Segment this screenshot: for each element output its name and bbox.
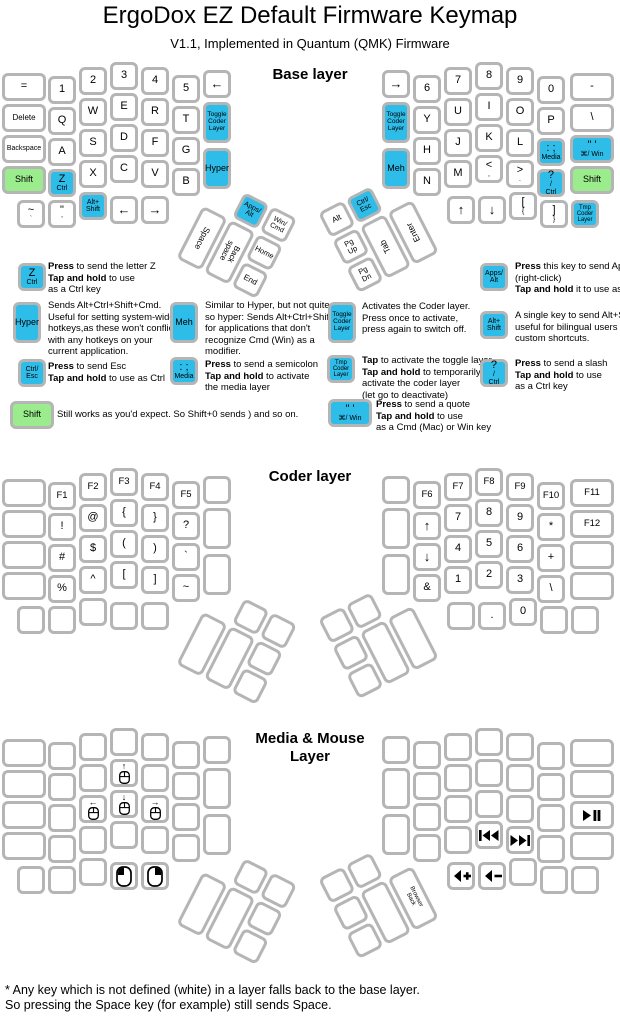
key-base-symbol: → bbox=[141, 196, 169, 224]
key-coder-blank bbox=[570, 572, 614, 600]
key-coder-8: 8 bbox=[475, 499, 503, 527]
key-base-hyper: Hyper bbox=[203, 148, 231, 189]
key-base-n: N bbox=[413, 168, 441, 196]
key-coder-symbol: ` bbox=[172, 543, 200, 571]
key-coder-symbol: ! bbox=[48, 513, 76, 541]
key-media-blank bbox=[172, 803, 200, 831]
key-media-blank bbox=[79, 764, 107, 792]
key-media-mouse-down: ↓ bbox=[110, 790, 138, 818]
key-base-symbol: - bbox=[570, 73, 614, 101]
key-base-symbol: ]} bbox=[540, 200, 568, 228]
key-media-blank bbox=[570, 770, 614, 798]
legend-key-apps-alt: Apps/Alt bbox=[480, 263, 508, 291]
key-base-t: T bbox=[172, 106, 200, 134]
key-media-left-click bbox=[110, 862, 138, 890]
key-coder-f2: F2 bbox=[79, 473, 107, 501]
key-media-prev-track bbox=[475, 821, 503, 849]
key-coder-f3: F3 bbox=[110, 468, 138, 496]
key-media-mouse-left: ← bbox=[79, 795, 107, 823]
key-coder-blank bbox=[382, 508, 410, 549]
key-base-shift: Shift bbox=[2, 166, 46, 194]
key-media-blank bbox=[203, 814, 231, 855]
key-coder-blank bbox=[2, 572, 46, 600]
key-coder-0: 0 bbox=[509, 598, 537, 626]
legend-text-toggle-coder-layer: Activates the Coder layer.Press once to … bbox=[362, 301, 470, 336]
key-media-blank bbox=[382, 814, 410, 855]
key-coder-symbol: * bbox=[537, 513, 565, 541]
legend-key-ctrl: ?/Ctrl bbox=[480, 359, 508, 387]
key-coder-blank bbox=[2, 541, 46, 569]
key-media-volume-down bbox=[478, 862, 506, 890]
key-media-blank bbox=[475, 728, 503, 756]
key-coder-symbol: { bbox=[110, 499, 138, 527]
key-coder-symbol: + bbox=[537, 544, 565, 572]
key-coder-symbol: & bbox=[413, 574, 441, 602]
key-media-blank bbox=[506, 795, 534, 823]
key-media-blank bbox=[382, 768, 410, 809]
key-coder-symbol: ? bbox=[172, 512, 200, 540]
key-coder-f4: F4 bbox=[141, 473, 169, 501]
legend-text-alt-shift: A single key to send Alt+Shift,useful fo… bbox=[515, 310, 620, 345]
key-base-media: : ;Media bbox=[537, 138, 565, 166]
key-base-symbol: ~` bbox=[17, 200, 45, 228]
key-base-symbol: ← bbox=[203, 70, 231, 98]
key-coder-symbol: @ bbox=[79, 504, 107, 532]
key-coder-7: 7 bbox=[444, 504, 472, 532]
key-base-meh: Meh bbox=[382, 148, 410, 189]
key-base-symbol: ↓ bbox=[478, 196, 506, 224]
key-coder-f1: F1 bbox=[48, 482, 76, 510]
legend-key-media: : ;Media bbox=[170, 357, 198, 385]
key-media-blank bbox=[48, 804, 76, 832]
key-base-g: G bbox=[172, 137, 200, 165]
legend-key-win: " '⌘/ Win bbox=[328, 399, 372, 427]
page-title: ErgoDox EZ Default Firmware Keymap bbox=[0, 2, 620, 30]
key-base-win: " '⌘/ Win bbox=[570, 135, 614, 163]
key-media-blank bbox=[172, 772, 200, 800]
key-base-y: Y bbox=[413, 106, 441, 134]
key-media-next-track bbox=[506, 826, 534, 854]
key-media-blank bbox=[537, 804, 565, 832]
key-base-b: B bbox=[172, 168, 200, 196]
key-base-delete: Delete bbox=[2, 104, 46, 132]
legend-key-ctrl-esc: Ctrl/Esc bbox=[18, 359, 46, 387]
key-coder-f10: F10 bbox=[537, 482, 565, 510]
key-coder-f11: F11 bbox=[570, 479, 614, 507]
key-coder-symbol: [ bbox=[110, 561, 138, 589]
key-media-blank bbox=[48, 742, 76, 770]
key-coder-1: 1 bbox=[444, 566, 472, 594]
key-media-volume-up bbox=[447, 862, 475, 890]
key-media-blank bbox=[537, 835, 565, 863]
key-media-blank bbox=[570, 832, 614, 860]
keymap-page: ErgoDox EZ Default Firmware Keymap V1.1,… bbox=[0, 0, 620, 1016]
key-coder-blank bbox=[2, 510, 46, 538]
key-base-symbol: ↑ bbox=[447, 196, 475, 224]
legend-text-ctrl-esc: Press to send EscTap and hold to use as … bbox=[48, 361, 165, 384]
legend-key-tmp-coder-layer: TmpCoderLayer bbox=[327, 355, 355, 383]
key-coder-f12: F12 bbox=[570, 510, 614, 538]
key-base-shift: Shift bbox=[570, 166, 614, 194]
key-media-blank bbox=[506, 764, 534, 792]
key-base-toggle-coder-layer: ToggleCoderLayer bbox=[382, 102, 410, 143]
key-coder-symbol: ↓ bbox=[413, 543, 441, 571]
key-coder-f7: F7 bbox=[444, 473, 472, 501]
key-base-symbol: "' bbox=[48, 200, 76, 228]
key-coder-blank bbox=[203, 508, 231, 549]
key-base-d: D bbox=[110, 124, 138, 152]
key-base-i: I bbox=[475, 93, 503, 121]
key-media-mouse-right: → bbox=[141, 795, 169, 823]
key-base-tmp-coder-layer: TmpCoderLayer bbox=[571, 200, 599, 228]
legend-text-meh: Similar to Hyper, but not quiteso hyper:… bbox=[205, 300, 334, 358]
key-media-blank bbox=[141, 764, 169, 792]
key-base-alt-shift: Alt+Shift bbox=[79, 192, 107, 220]
key-media-blank bbox=[382, 736, 410, 764]
key-base-p: P bbox=[537, 107, 565, 135]
key-coder-blank bbox=[141, 602, 169, 630]
key-base-x: X bbox=[79, 160, 107, 188]
key-coder-f8: F8 bbox=[475, 468, 503, 496]
key-base-symbol: ← bbox=[110, 196, 138, 224]
key-media-blank bbox=[110, 728, 138, 756]
key-base-s: S bbox=[79, 129, 107, 157]
legend-text-shift: Still works as you'd expect. So Shift+0 … bbox=[57, 409, 298, 421]
legend-text-media: Press to send a semicolonTap and hold to… bbox=[205, 359, 318, 394]
key-media-play-pause bbox=[570, 801, 614, 829]
key-media-blank bbox=[2, 832, 46, 860]
legend-key-toggle-coder-layer: ToggleCoderLayer bbox=[328, 302, 356, 343]
key-media-blank bbox=[110, 821, 138, 849]
key-coder-blank bbox=[17, 606, 45, 634]
key-media-blank bbox=[475, 759, 503, 787]
key-coder-symbol: $ bbox=[79, 535, 107, 563]
key-media-blank bbox=[17, 866, 45, 894]
legend-text-apps-alt: Press this key to send Apps(right-click)… bbox=[515, 261, 620, 296]
key-coder-blank bbox=[570, 541, 614, 569]
key-media-blank bbox=[413, 834, 441, 862]
key-coder-blank bbox=[382, 476, 410, 504]
legend-text-hyper: Sends Alt+Ctrl+Shift+Cmd.Useful for sett… bbox=[48, 300, 176, 358]
footnote-line-1: * Any key which is not defined (white) i… bbox=[5, 983, 420, 998]
key-media-blank bbox=[48, 835, 76, 863]
key-base-3: 3 bbox=[110, 62, 138, 90]
key-coder-symbol: # bbox=[48, 544, 76, 572]
key-base-e: E bbox=[110, 93, 138, 121]
legend-text-tmp-coder-layer: Tap to activate the toggle layer.Tap and… bbox=[362, 355, 494, 401]
key-coder-symbol: ( bbox=[110, 530, 138, 558]
key-coder-symbol: ^ bbox=[79, 566, 107, 594]
key-media-blank bbox=[48, 866, 76, 894]
key-coder-symbol: . bbox=[478, 602, 506, 630]
key-base-j: J bbox=[444, 129, 472, 157]
key-coder-blank bbox=[48, 606, 76, 634]
key-coder-symbol: } bbox=[141, 504, 169, 532]
key-media-blank bbox=[540, 866, 568, 894]
key-coder-symbol: % bbox=[48, 575, 76, 603]
key-media-blank bbox=[203, 768, 231, 809]
key-base-1: 1 bbox=[48, 76, 76, 104]
key-coder-9: 9 bbox=[506, 504, 534, 532]
key-media-blank bbox=[444, 826, 472, 854]
key-coder-2: 2 bbox=[475, 561, 503, 589]
key-coder-blank bbox=[540, 606, 568, 634]
legend-text-ctrl: Press to send a slashTap and hold to use… bbox=[515, 358, 607, 393]
key-base-w: W bbox=[79, 98, 107, 126]
key-media-blank bbox=[2, 739, 46, 767]
legend-key-hyper: Hyper bbox=[13, 302, 41, 343]
key-base-r: R bbox=[141, 98, 169, 126]
key-base-u: U bbox=[444, 98, 472, 126]
key-coder-blank bbox=[203, 476, 231, 504]
key-media-blank bbox=[444, 733, 472, 761]
key-coder-symbol: \ bbox=[537, 575, 565, 603]
key-base-6: 6 bbox=[413, 75, 441, 103]
key-coder-blank bbox=[382, 554, 410, 595]
key-coder-blank bbox=[447, 602, 475, 630]
key-media-blank bbox=[79, 733, 107, 761]
key-media-blank bbox=[475, 790, 503, 818]
key-media-blank bbox=[506, 733, 534, 761]
key-media-blank bbox=[571, 866, 599, 894]
key-media-blank bbox=[2, 770, 46, 798]
key-base-symbol: <, bbox=[475, 155, 503, 183]
footnote-line-2: So pressing the Space key (for example) … bbox=[5, 998, 420, 1013]
key-media-blank bbox=[48, 773, 76, 801]
key-coder-f5: F5 bbox=[172, 481, 200, 509]
key-media-blank bbox=[444, 764, 472, 792]
key-media-blank bbox=[570, 739, 614, 767]
key-base-m: M bbox=[444, 160, 472, 188]
key-media-blank bbox=[413, 803, 441, 831]
key-coder-f9: F9 bbox=[506, 473, 534, 501]
key-coder-f6: F6 bbox=[413, 481, 441, 509]
footnote: * Any key which is not defined (white) i… bbox=[5, 983, 420, 1013]
key-media-blank bbox=[537, 742, 565, 770]
key-base-toggle-coder-layer: ToggleCoderLayer bbox=[203, 102, 231, 143]
legend-key-shift: Shift bbox=[10, 401, 54, 429]
key-base-z-ctrl: ZCtrl bbox=[48, 169, 76, 197]
key-base-k: K bbox=[475, 124, 503, 152]
key-base-l: L bbox=[506, 129, 534, 157]
key-base-o: O bbox=[506, 98, 534, 126]
key-coder-blank bbox=[571, 606, 599, 634]
key-coder-symbol: ) bbox=[141, 535, 169, 563]
key-base-backspace: Backspace bbox=[2, 135, 46, 163]
key-coder-blank bbox=[2, 479, 46, 507]
key-base-symbol: \ bbox=[570, 104, 614, 132]
key-base-symbol: [{ bbox=[509, 192, 537, 220]
key-coder-symbol: ~ bbox=[172, 574, 200, 602]
key-coder-5: 5 bbox=[475, 530, 503, 558]
key-media-blank bbox=[172, 834, 200, 862]
key-media-blank bbox=[172, 741, 200, 769]
key-coder-symbol: ↑ bbox=[413, 512, 441, 540]
legend-key-alt-shift: Alt+Shift bbox=[480, 311, 508, 339]
key-base-2: 2 bbox=[79, 67, 107, 95]
key-base-symbol: >. bbox=[506, 160, 534, 188]
key-media-blank bbox=[537, 773, 565, 801]
key-base-7: 7 bbox=[444, 67, 472, 95]
key-coder-blank bbox=[203, 554, 231, 595]
legend-text-z-ctrl: Press to send the letter ZTap and hold t… bbox=[48, 261, 156, 296]
key-base-f: F bbox=[141, 129, 169, 157]
key-coder-3: 3 bbox=[506, 566, 534, 594]
key-media-blank bbox=[141, 733, 169, 761]
key-media-blank bbox=[413, 772, 441, 800]
key-base-h: H bbox=[413, 137, 441, 165]
key-base-v: V bbox=[141, 160, 169, 188]
key-base-q: Q bbox=[48, 107, 76, 135]
key-coder-6: 6 bbox=[506, 535, 534, 563]
key-base-ctrl: ?/Ctrl bbox=[537, 169, 565, 197]
legend-key-z-ctrl: ZCtrl bbox=[18, 263, 46, 291]
key-media-blank bbox=[79, 826, 107, 854]
key-media-blank bbox=[203, 736, 231, 764]
key-media-blank bbox=[413, 741, 441, 769]
key-base-a: A bbox=[48, 138, 76, 166]
key-base-0: 0 bbox=[537, 76, 565, 104]
key-media-blank bbox=[444, 795, 472, 823]
key-base-4: 4 bbox=[141, 67, 169, 95]
key-media-right-click bbox=[141, 862, 169, 890]
key-media-blank bbox=[141, 826, 169, 854]
legend-text-win: Press to send a quoteTap and hold to use… bbox=[376, 399, 491, 434]
page-subtitle: V1.1, Implemented in Quantum (QMK) Firmw… bbox=[0, 36, 620, 51]
key-media-mouse-up: ↑ bbox=[110, 759, 138, 787]
key-media-blank bbox=[509, 858, 537, 886]
key-media-blank bbox=[79, 858, 107, 886]
legend-key-meh: Meh bbox=[170, 302, 198, 343]
key-base-5: 5 bbox=[172, 75, 200, 103]
key-base-8: 8 bbox=[475, 62, 503, 90]
key-base-symbol: = bbox=[2, 73, 46, 101]
key-coder-blank bbox=[110, 602, 138, 630]
key-coder-4: 4 bbox=[444, 535, 472, 563]
key-coder-symbol: ] bbox=[141, 566, 169, 594]
key-base-symbol: → bbox=[382, 70, 410, 98]
key-base-9: 9 bbox=[506, 67, 534, 95]
key-coder-blank bbox=[79, 598, 107, 626]
key-media-blank bbox=[2, 801, 46, 829]
key-base-c: C bbox=[110, 155, 138, 183]
